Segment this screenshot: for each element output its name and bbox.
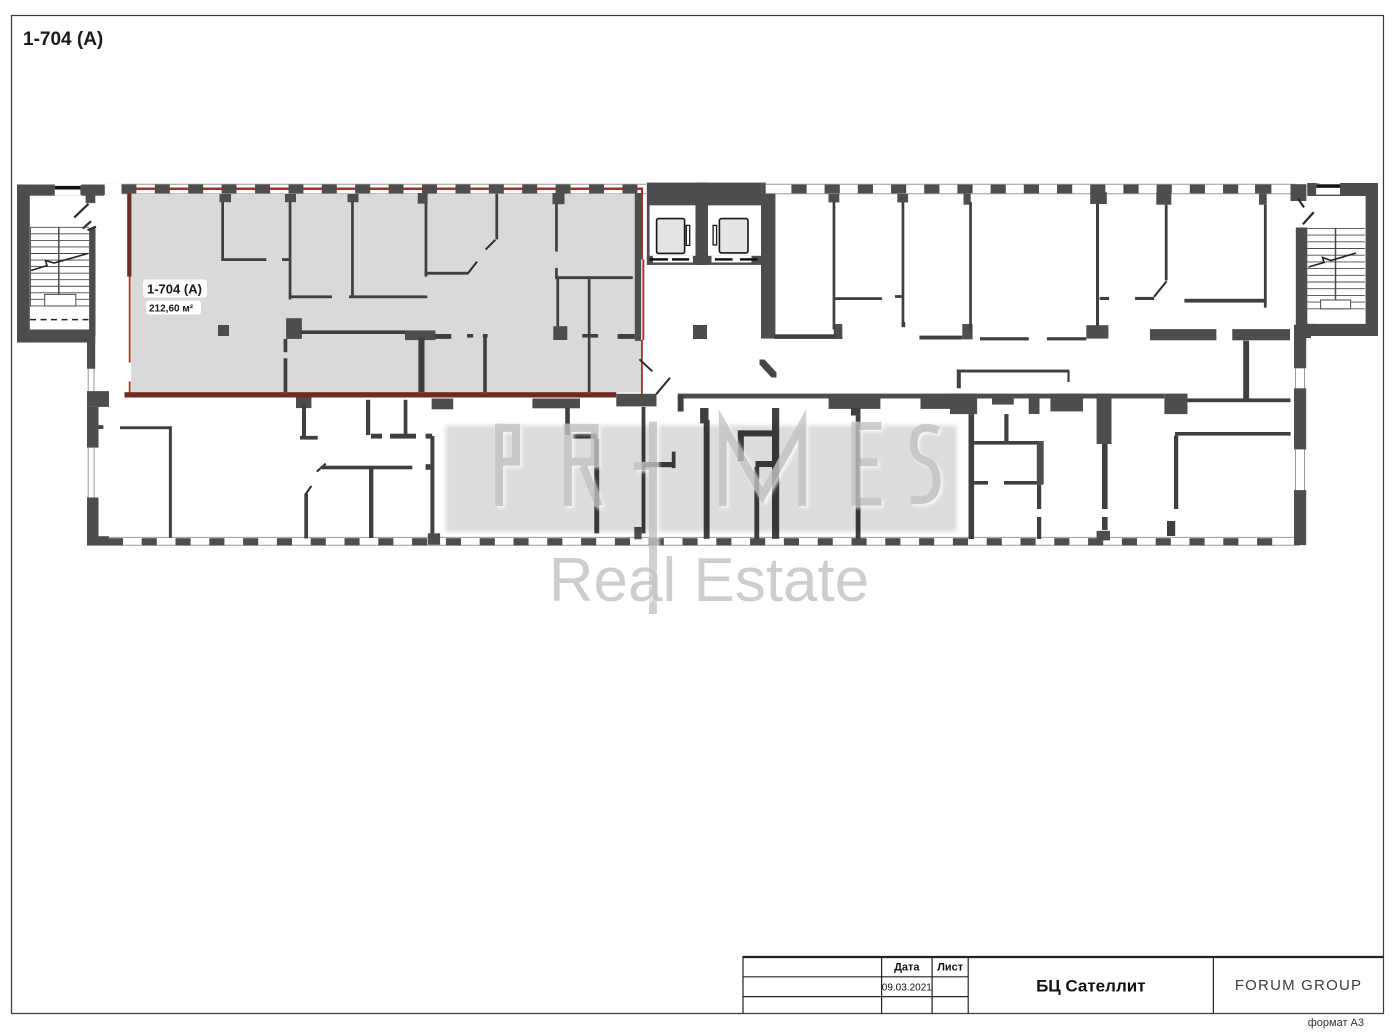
svg-text:Real Estate: Real Estate xyxy=(549,546,870,615)
svg-text:формат А3: формат А3 xyxy=(1308,1017,1364,1029)
svg-text:212,60 м²: 212,60 м² xyxy=(149,304,194,315)
svg-text:БЦ Сателлит: БЦ Сателлит xyxy=(1036,977,1145,996)
svg-text:Лист: Лист xyxy=(937,962,964,974)
svg-text:09.03.2021: 09.03.2021 xyxy=(882,983,932,994)
svg-text:Дата: Дата xyxy=(894,962,920,974)
svg-text:1-704 (А): 1-704 (А) xyxy=(147,282,202,297)
svg-text:FORUM GROUP: FORUM GROUP xyxy=(1235,977,1362,994)
svg-text:1-704 (A): 1-704 (A) xyxy=(23,29,103,50)
